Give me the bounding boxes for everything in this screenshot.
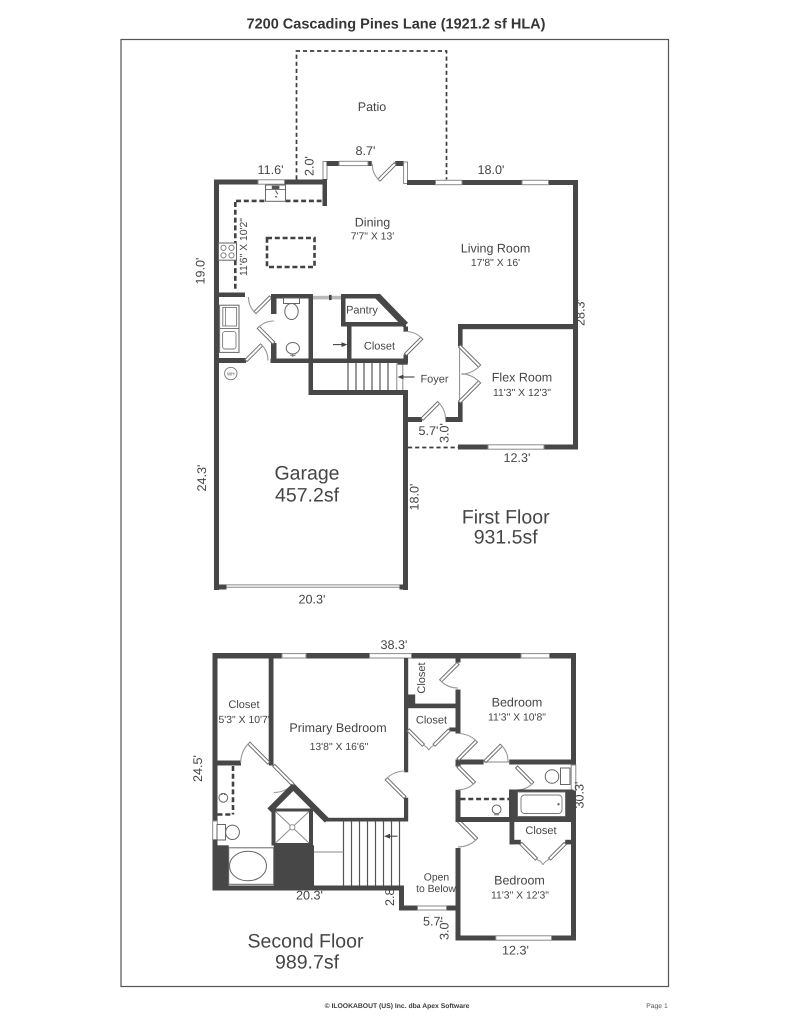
svg-text:38.3': 38.3': [381, 638, 408, 652]
svg-text:17'8" X 16': 17'8" X 16': [471, 258, 520, 269]
svg-text:3.0': 3.0': [438, 920, 452, 940]
svg-text:5'3" X 10'7": 5'3" X 10'7": [219, 715, 272, 726]
svg-text:7200 Cascading Pines Lane (192: 7200 Cascading Pines Lane (1921.2 sf HLA…: [247, 17, 546, 33]
svg-text:Dining: Dining: [355, 216, 390, 230]
svg-text:7'7" X 13': 7'7" X 13': [351, 232, 394, 243]
svg-text:Primary Bedroom: Primary Bedroom: [289, 721, 386, 735]
svg-text:to Below: to Below: [416, 884, 456, 895]
svg-text:Closet: Closet: [228, 699, 259, 711]
svg-text:Bedroom: Bedroom: [492, 696, 543, 710]
svg-text:Foyer: Foyer: [420, 374, 448, 386]
svg-text:WH: WH: [227, 371, 235, 376]
svg-text:11.6': 11.6': [258, 163, 284, 177]
svg-text:Page 1: Page 1: [646, 1003, 668, 1010]
svg-text:Living Room: Living Room: [461, 242, 530, 256]
svg-text:Closet: Closet: [525, 825, 556, 837]
svg-text:Closet: Closet: [364, 341, 395, 353]
svg-text:Pantry: Pantry: [346, 305, 378, 317]
svg-text:3.0': 3.0': [438, 423, 452, 443]
svg-text:Closet: Closet: [416, 715, 447, 727]
svg-text:18.0': 18.0': [408, 484, 422, 511]
svg-text:989.7sf: 989.7sf: [275, 952, 340, 974]
svg-text:11'3" X 12'3": 11'3" X 12'3": [491, 891, 549, 902]
svg-text:5.7': 5.7': [419, 424, 439, 438]
svg-text:Second Floor: Second Floor: [248, 930, 364, 952]
svg-text:Patio: Patio: [358, 100, 387, 114]
svg-text:20.3': 20.3': [296, 889, 323, 903]
svg-text:Bedroom: Bedroom: [494, 874, 545, 888]
svg-text:11'3" X 12'3": 11'3" X 12'3": [493, 388, 551, 399]
svg-text:24.5': 24.5': [191, 755, 205, 782]
svg-text:20.3': 20.3': [299, 593, 326, 607]
svg-text:11'6" X 10'2": 11'6" X 10'2": [239, 218, 250, 276]
svg-text:Closet: Closet: [416, 662, 428, 693]
svg-text:8.7': 8.7': [356, 144, 376, 158]
svg-text:Open: Open: [424, 873, 450, 884]
svg-text:12.3': 12.3': [504, 451, 531, 465]
svg-text:457.2sf: 457.2sf: [275, 485, 340, 507]
svg-text:28.3': 28.3': [574, 299, 588, 326]
svg-text:12.3': 12.3': [502, 944, 529, 958]
svg-text:19.0': 19.0': [194, 258, 208, 285]
svg-text:931.5sf: 931.5sf: [474, 527, 539, 549]
svg-text:© ILOOKABOUT (US) Inc. dba Ape: © ILOOKABOUT (US) Inc. dba Apex Software: [325, 1003, 470, 1010]
svg-text:18.0': 18.0': [478, 163, 505, 177]
svg-text:First Floor: First Floor: [462, 507, 550, 529]
svg-text:13'8" X 16'6": 13'8" X 16'6": [310, 742, 369, 753]
svg-text:Garage: Garage: [274, 463, 339, 485]
svg-text:2.8': 2.8': [383, 886, 397, 906]
svg-text:11'3" X 10'8": 11'3" X 10'8": [488, 713, 546, 724]
svg-text:30.3': 30.3': [573, 782, 587, 809]
svg-text:2.0': 2.0': [303, 156, 317, 176]
svg-text:24.3': 24.3': [195, 465, 209, 492]
svg-text:Flex Room: Flex Room: [492, 371, 552, 385]
